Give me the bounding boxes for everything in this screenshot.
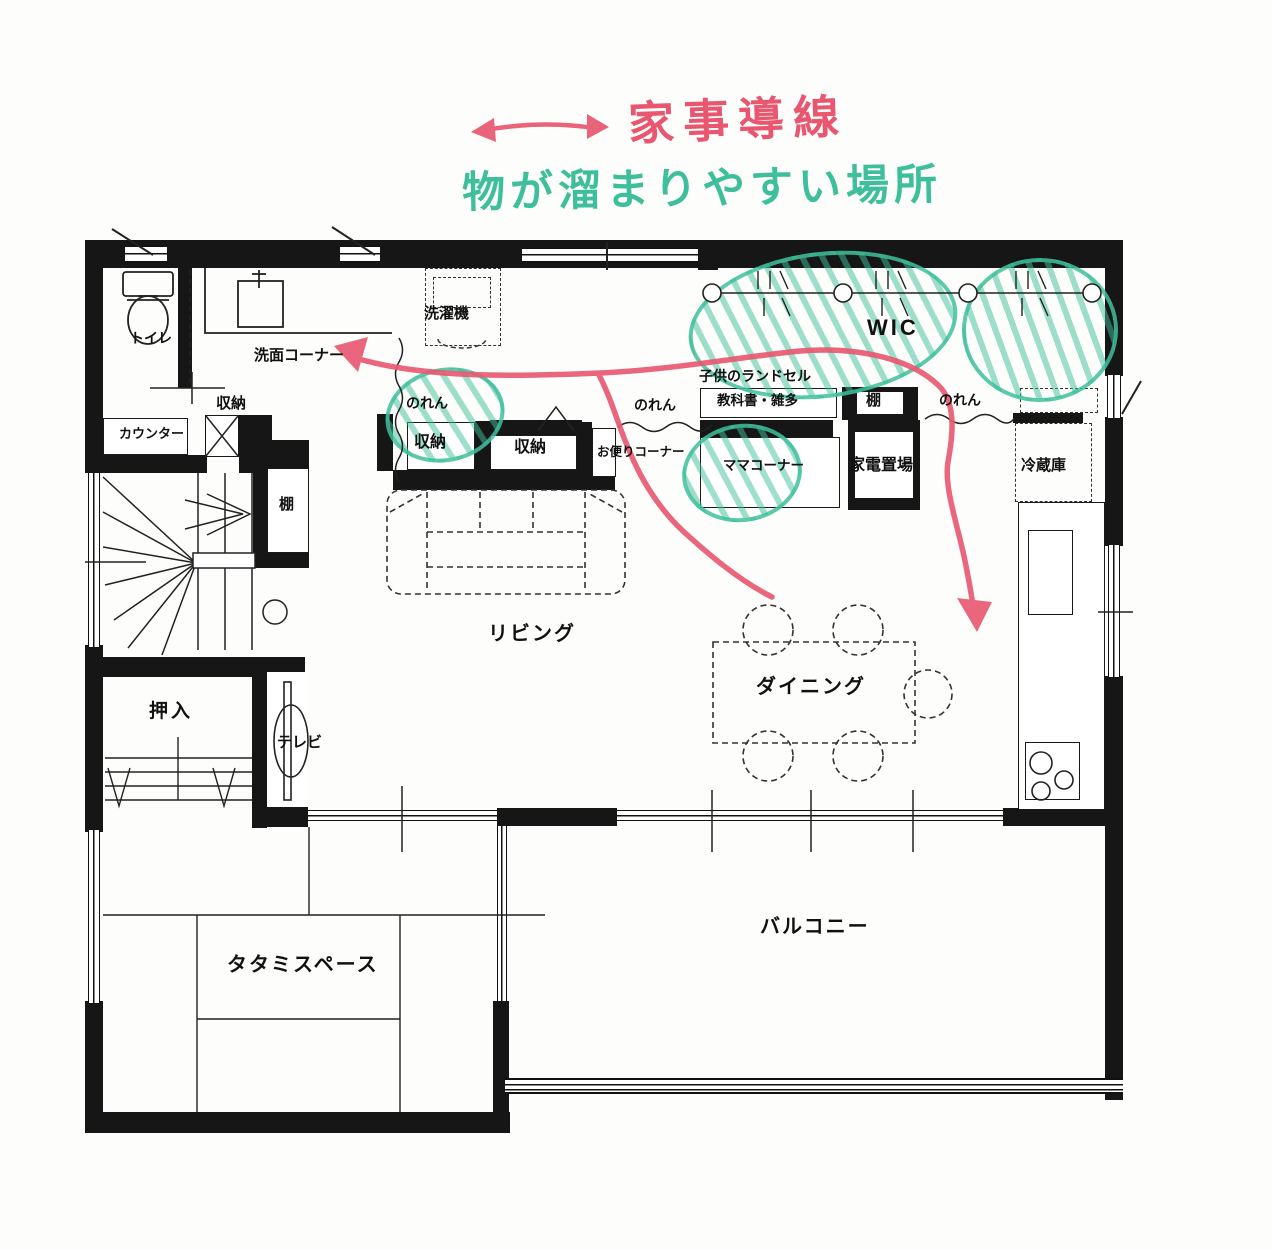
wall-tv-bottom [252, 807, 308, 827]
floor-plan: 家事導線 物が溜まりやすい場所 [0, 0, 1272, 1250]
noren-label-3: のれん [939, 393, 981, 408]
dining-label: ダイニング [756, 677, 866, 698]
wall-storagerow-post3 [577, 422, 592, 474]
tatami-label: タタミスペース [227, 955, 379, 976]
washer-label: 洗濯機 [424, 306, 469, 322]
tv-label: テレビ [277, 735, 322, 751]
mama-corner-label: ママコーナー [723, 459, 804, 473]
wall-fridge-top [1013, 413, 1083, 423]
balcony-railing [505, 1078, 1123, 1094]
window-stairs [88, 470, 100, 647]
balcony-label: バルコニー [760, 917, 870, 938]
wall-bottom-tatami [85, 1112, 510, 1133]
living-label: リビング [488, 624, 576, 645]
hall-storage-label: 収納 [216, 396, 246, 412]
window-balcony-left [308, 810, 497, 821]
washroom-label: 洗面コーナー [254, 348, 344, 364]
window-laundry [522, 248, 702, 262]
wall-storagerow-top [490, 420, 582, 435]
stair-shelf-label: 棚 [279, 497, 294, 513]
wall-shelf-top [253, 440, 309, 468]
clutter-oval-corner [962, 258, 1118, 402]
kitchen-stove [1025, 742, 1080, 800]
storage-label-1: 収納 [414, 435, 446, 452]
wall-shelf-bottom [267, 553, 309, 568]
wall-counter-bottom [85, 455, 207, 473]
textbooks-label: 教科書・雑多 [717, 394, 798, 408]
sofa [387, 490, 625, 594]
wall-kitchen-bottom [1003, 808, 1117, 826]
oshiire-lines [105, 737, 252, 806]
wic-shelf-label: 棚 [866, 393, 881, 409]
kids-bag-label: 子供のランドセル [699, 369, 811, 384]
wall-right-3 [1105, 676, 1123, 1100]
window-kitchen [1108, 545, 1120, 677]
wic-label: WIC [867, 316, 919, 339]
wall-right-2 [1105, 417, 1123, 546]
appliance-label: 家電置場 [849, 458, 913, 475]
noren-label-1: のれん [406, 396, 448, 411]
wall-oshiire-right [252, 677, 267, 828]
wall-sofa-back [393, 470, 615, 490]
kitchen-sink [1028, 530, 1073, 615]
wall-tatami-balcony-thin [497, 826, 507, 1003]
wall-wic-post [698, 248, 718, 270]
storage-label-2: 収納 [514, 440, 546, 457]
noren-label-2: のれん [634, 398, 676, 413]
clutter-annotation-label: 物が溜まりやすい場所 [461, 150, 942, 220]
window-balcony-right [617, 810, 1003, 821]
counter-label: カウンター [119, 427, 184, 441]
window-right-vent [1107, 375, 1121, 418]
hall-storage-xbox [205, 415, 239, 457]
window-tatami-left [88, 830, 100, 1003]
window-toilet [125, 246, 167, 262]
washroom-sink [205, 268, 392, 333]
flow-annotation-label: 家事導線 [627, 80, 849, 154]
fridge-label: 冷蔵庫 [1021, 458, 1066, 474]
oshiire-label: 押入 [149, 702, 193, 722]
flow-legend-arrow [471, 114, 609, 142]
wall-toilet-right [178, 268, 192, 388]
wall-stairs-right [253, 468, 267, 568]
wall-balcony-mid [497, 808, 617, 826]
washer-inner [433, 277, 491, 308]
wall-tatami-balcony-solid [493, 1001, 509, 1113]
mail-corner-label: お便りコーナー [597, 446, 685, 459]
wall-left-upper [85, 240, 103, 472]
toilet-label: トイレ [130, 331, 172, 346]
window-washroom [340, 246, 380, 262]
